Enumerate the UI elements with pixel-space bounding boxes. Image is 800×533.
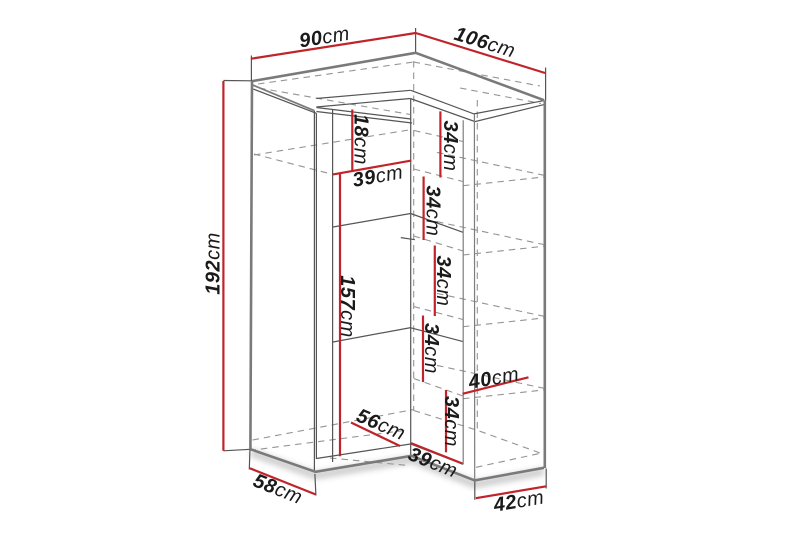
svg-text:18cm: 18cm (350, 114, 372, 165)
svg-text:34cm: 34cm (439, 121, 461, 172)
svg-text:34cm: 34cm (432, 256, 454, 307)
svg-text:157cm: 157cm (336, 275, 358, 338)
svg-text:34cm: 34cm (440, 396, 462, 447)
svg-text:192cm: 192cm (203, 232, 225, 295)
svg-text:34cm: 34cm (420, 323, 442, 374)
svg-text:34cm: 34cm (421, 186, 443, 237)
